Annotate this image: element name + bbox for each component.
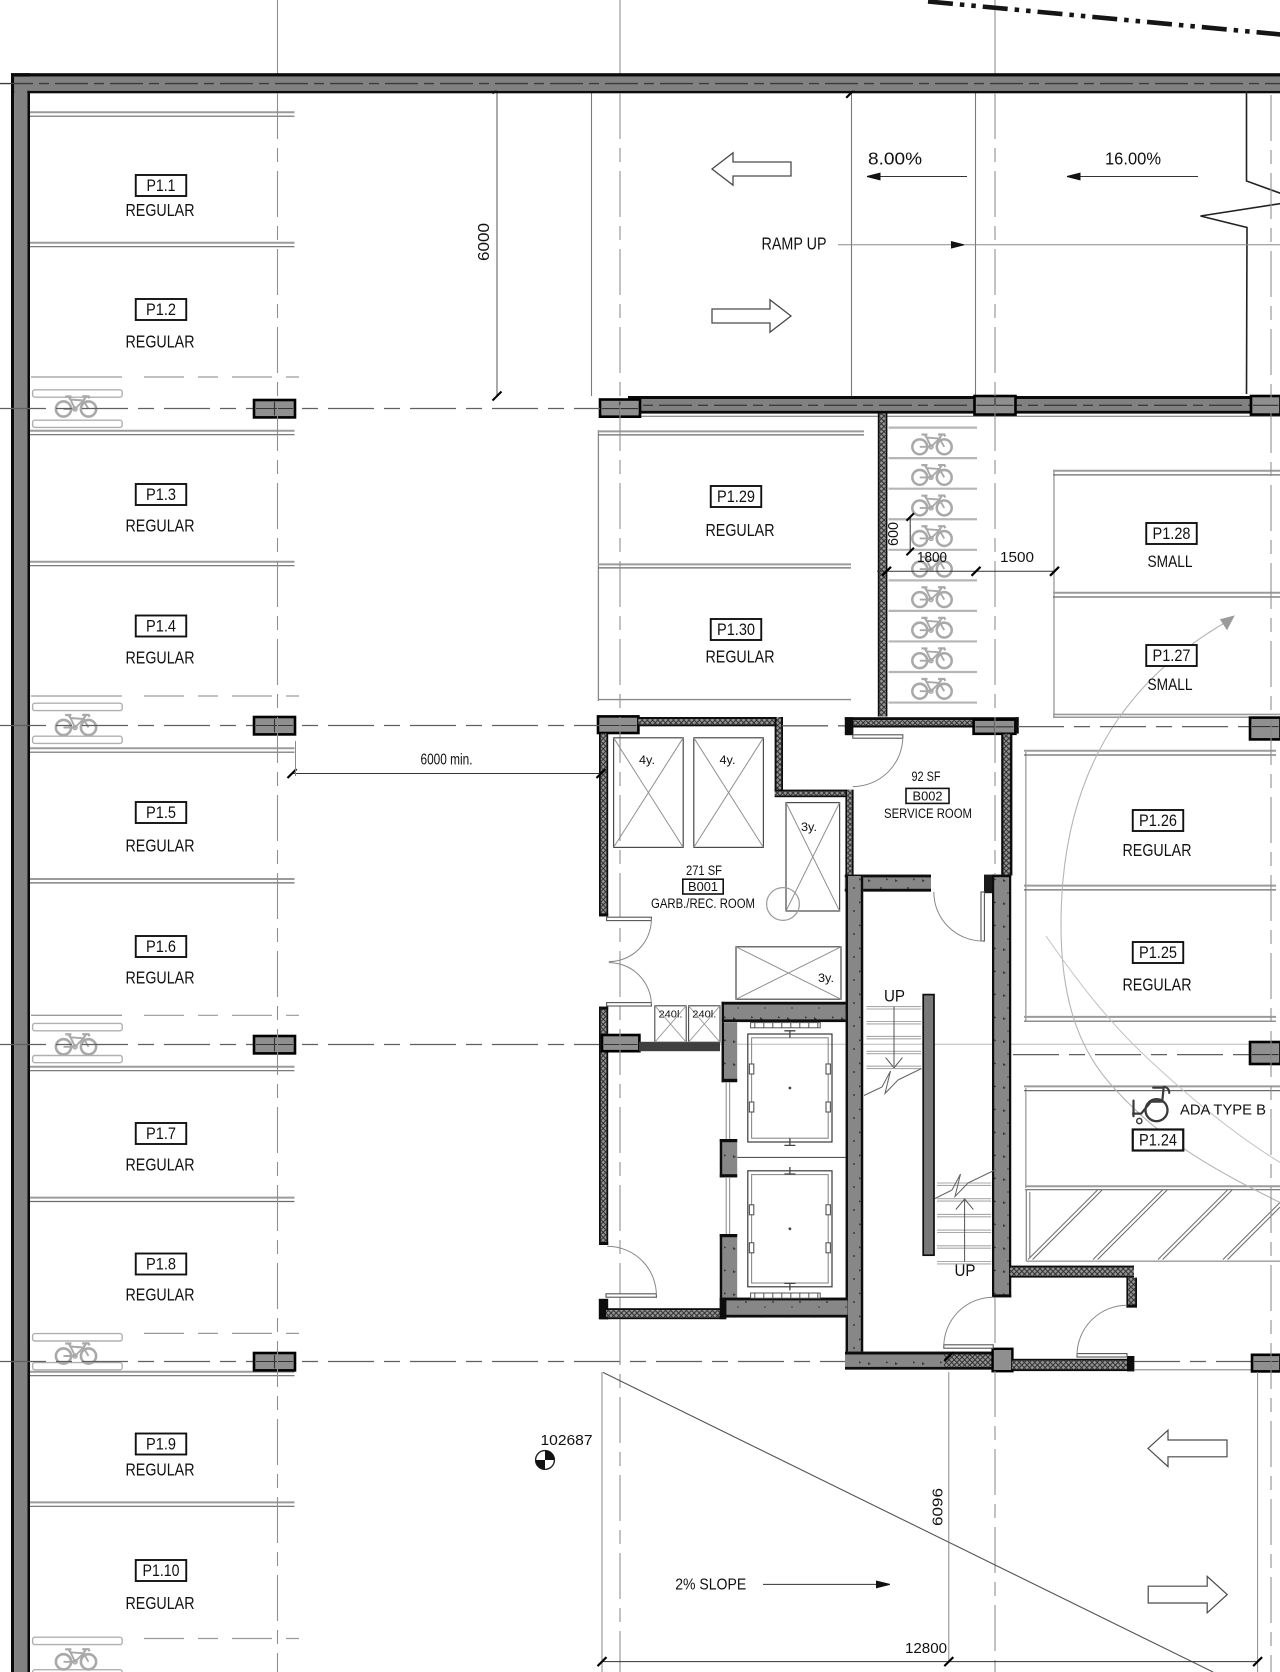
svg-text:REGULAR: REGULAR [126, 967, 195, 987]
svg-text:RAMP UP: RAMP UP [762, 234, 827, 254]
svg-text:240l.: 240l. [692, 1009, 716, 1021]
svg-text:P1.25: P1.25 [1139, 943, 1177, 962]
svg-text:6000 min.: 6000 min. [421, 752, 473, 769]
svg-text:1500: 1500 [1000, 550, 1034, 566]
svg-text:271 SF: 271 SF [686, 862, 722, 878]
svg-text:REGULAR: REGULAR [126, 647, 195, 667]
svg-text:ADA TYPE B: ADA TYPE B [1180, 1102, 1266, 1119]
svg-text:12800: 12800 [905, 1641, 947, 1657]
svg-text:B001: B001 [688, 880, 718, 894]
svg-text:REGULAR: REGULAR [1123, 975, 1192, 995]
svg-text:240l.: 240l. [659, 1009, 683, 1021]
svg-text:REGULAR: REGULAR [126, 331, 195, 351]
svg-text:REGULAR: REGULAR [1123, 840, 1192, 860]
svg-text:UP: UP [884, 987, 905, 1005]
svg-text:REGULAR: REGULAR [706, 647, 775, 667]
svg-text:1800: 1800 [917, 550, 947, 566]
svg-text:92 SF: 92 SF [912, 768, 941, 784]
svg-text:16.00%: 16.00% [1105, 149, 1161, 169]
svg-text:8.00%: 8.00% [868, 149, 922, 169]
svg-text:2% SLOPE: 2% SLOPE [675, 1577, 746, 1594]
svg-text:REGULAR: REGULAR [126, 1154, 195, 1174]
svg-text:P1.1: P1.1 [147, 176, 176, 195]
svg-text:P1.6: P1.6 [146, 937, 176, 956]
svg-text:600: 600 [886, 522, 902, 546]
svg-text:REGULAR: REGULAR [126, 835, 195, 855]
svg-text:P1.4: P1.4 [146, 617, 176, 636]
svg-text:4y.: 4y. [639, 755, 655, 767]
svg-text:REGULAR: REGULAR [126, 515, 195, 535]
svg-text:3y.: 3y. [801, 822, 817, 834]
svg-text:P1.7: P1.7 [146, 1124, 176, 1143]
svg-text:UP: UP [955, 1262, 976, 1280]
svg-text:REGULAR: REGULAR [706, 520, 775, 540]
svg-text:P1.27: P1.27 [1153, 646, 1191, 665]
svg-text:P1.8: P1.8 [146, 1255, 176, 1274]
svg-text:P1.2: P1.2 [146, 300, 176, 319]
svg-text:P1.28: P1.28 [1153, 524, 1191, 543]
svg-text:SERVICE ROOM: SERVICE ROOM [884, 806, 972, 822]
svg-text:P1.26: P1.26 [1139, 811, 1177, 830]
svg-text:102687: 102687 [541, 1432, 593, 1449]
svg-text:REGULAR: REGULAR [126, 1459, 195, 1479]
svg-text:P1.30: P1.30 [717, 620, 755, 639]
svg-text:P1.29: P1.29 [717, 487, 755, 506]
svg-text:6000: 6000 [476, 223, 493, 261]
svg-text:3y.: 3y. [818, 973, 834, 985]
svg-text:SMALL: SMALL [1148, 675, 1193, 694]
svg-text:REGULAR: REGULAR [126, 1593, 195, 1613]
svg-text:B002: B002 [913, 789, 943, 803]
svg-text:REGULAR: REGULAR [126, 200, 195, 220]
svg-text:P1.3: P1.3 [146, 485, 176, 504]
svg-text:GARB./REC. ROOM: GARB./REC. ROOM [651, 896, 755, 912]
svg-text:P1.24: P1.24 [1139, 1131, 1177, 1150]
svg-text:REGULAR: REGULAR [126, 1284, 195, 1304]
svg-text:P1.10: P1.10 [143, 1561, 180, 1580]
svg-text:P1.5: P1.5 [146, 803, 176, 822]
svg-text:6096: 6096 [931, 1488, 947, 1526]
svg-text:4y.: 4y. [720, 755, 736, 767]
svg-text:P1.9: P1.9 [146, 1435, 176, 1454]
svg-text:SMALL: SMALL [1148, 552, 1193, 571]
